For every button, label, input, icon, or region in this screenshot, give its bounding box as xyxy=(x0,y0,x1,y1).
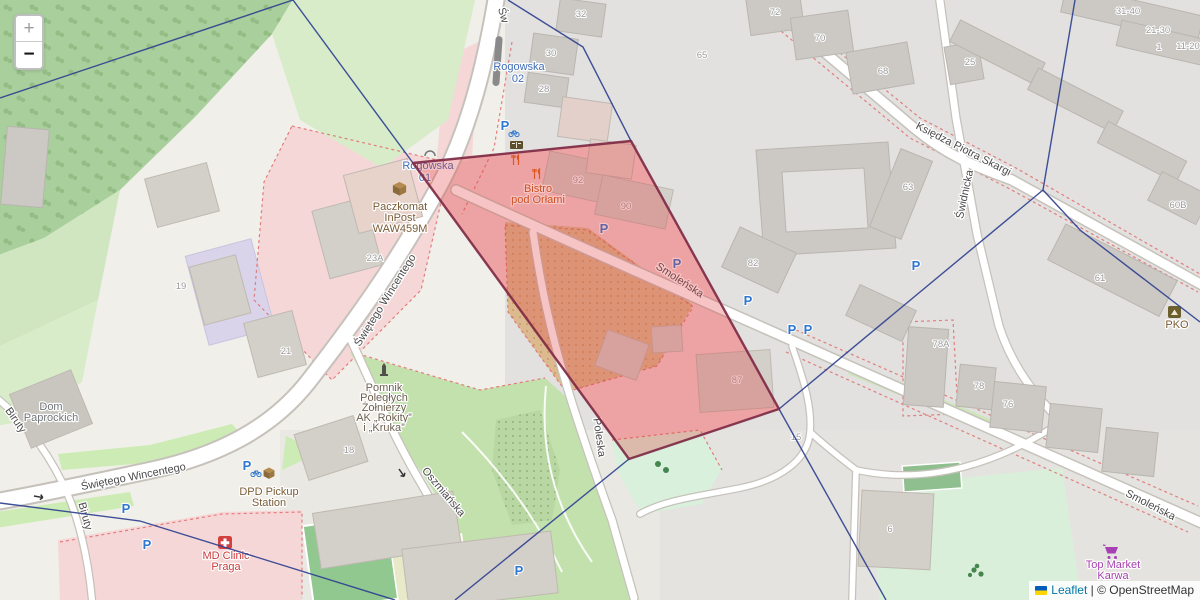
building xyxy=(145,163,220,228)
map-svg: 3230289290828765727068256360B6178A787631… xyxy=(0,0,1200,600)
parking-icon: P xyxy=(515,563,524,578)
zoom-out-button[interactable]: − xyxy=(16,42,42,68)
attribution-text: © OpenStreetMap xyxy=(1097,583,1194,597)
building xyxy=(990,381,1047,432)
leaflet-link[interactable]: Leaflet xyxy=(1051,583,1087,597)
parking-icon: P xyxy=(501,118,510,133)
house-number: 70 xyxy=(815,33,826,44)
poi-label: PKO xyxy=(1165,319,1189,331)
house-number: 65 xyxy=(697,50,708,61)
parking-icon: P xyxy=(243,458,252,473)
house-number: 28 xyxy=(539,84,550,95)
attribution-separator: | xyxy=(1091,583,1094,597)
building xyxy=(858,490,934,570)
parking-icon: P xyxy=(788,322,797,337)
house-number: 61 xyxy=(1095,273,1106,284)
house-number: 21-30 xyxy=(1146,25,1170,36)
house-number: 6 xyxy=(887,524,892,535)
house-number: 63 xyxy=(903,182,914,193)
bus-stop-label: Rogowska xyxy=(493,61,545,73)
library-icon xyxy=(510,141,523,149)
house-number: 19 xyxy=(176,281,187,292)
map-canvas[interactable]: 3230289290828765727068256360B6178A787631… xyxy=(0,0,1200,600)
house-number: 78A xyxy=(933,339,951,350)
house-number: 72 xyxy=(770,7,781,18)
building xyxy=(557,97,612,144)
house-number: 1 xyxy=(1156,42,1161,53)
bus-stop-label: 02 xyxy=(512,73,524,85)
bank-pko-icon xyxy=(1168,306,1181,318)
house-number: 23A xyxy=(367,253,385,264)
zoom-control: + − xyxy=(14,14,44,70)
house-number: 21 xyxy=(281,346,292,357)
house-number: 68 xyxy=(878,66,889,77)
house-number: 82 xyxy=(748,258,759,269)
dpd-parcel-icon xyxy=(264,468,275,479)
zoom-in-button[interactable]: + xyxy=(16,16,42,42)
building xyxy=(1,126,50,207)
house-number: 76 xyxy=(1003,399,1014,410)
house-number: 30 xyxy=(546,48,557,59)
house-number: 11-20 xyxy=(1176,41,1200,52)
building xyxy=(1102,427,1158,476)
parking-icon: P xyxy=(122,501,131,516)
attribution-bar: Leaflet | © OpenStreetMap xyxy=(1029,581,1200,600)
parking-icon: P xyxy=(744,293,753,308)
house-number: 60B xyxy=(1170,200,1187,211)
house-number: 25 xyxy=(965,57,976,68)
house-number: 18 xyxy=(344,445,355,456)
house-number: 32 xyxy=(576,9,587,20)
parking-icon: P xyxy=(804,322,813,337)
parking-icon: P xyxy=(143,537,152,552)
house-number: 78 xyxy=(974,381,985,392)
building xyxy=(1046,403,1102,452)
house-number: 31-40 xyxy=(1116,6,1140,17)
forest-pattern xyxy=(0,0,295,256)
shelter-icon xyxy=(425,151,435,156)
ukraine-flag-icon xyxy=(1035,586,1047,595)
parking-icon: P xyxy=(912,258,921,273)
bicycle-icon xyxy=(251,471,261,477)
